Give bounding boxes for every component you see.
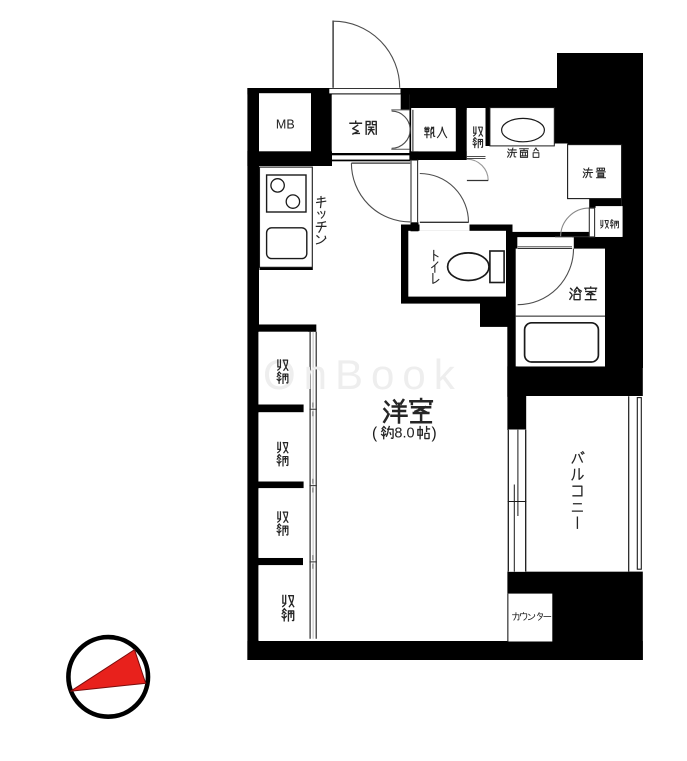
svg-text:): ): [432, 425, 437, 442]
svg-text:8.0: 8.0: [394, 426, 414, 442]
svg-text:OnBook: OnBook: [263, 351, 463, 398]
svg-text:MB: MB: [276, 117, 295, 131]
svg-text:(: (: [372, 425, 378, 442]
